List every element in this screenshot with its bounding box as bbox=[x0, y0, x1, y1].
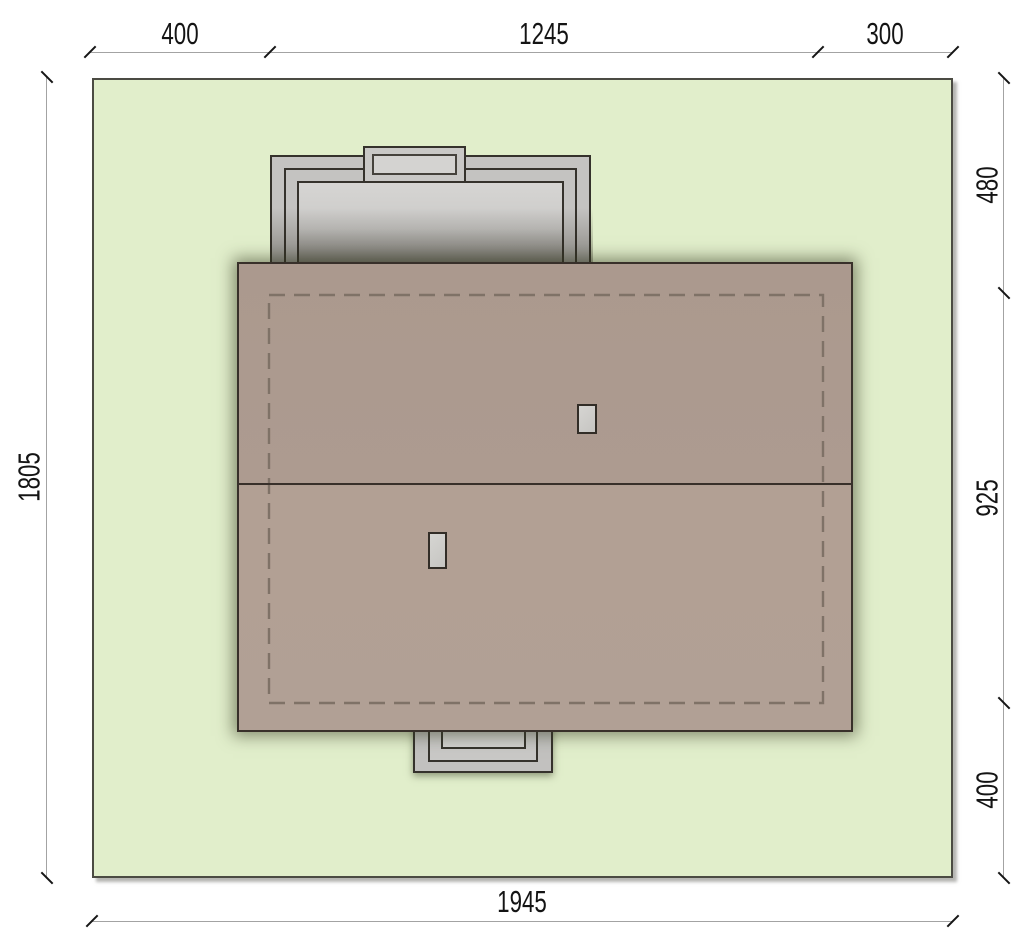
dimension-tick bbox=[264, 46, 277, 59]
dimension-tick bbox=[84, 46, 97, 59]
dimension-line-top: 400 1245 300 bbox=[90, 52, 953, 53]
dimension-tick bbox=[41, 71, 54, 84]
terrace-top-box-inner bbox=[372, 154, 457, 175]
dimension-label-right-2: 925 bbox=[972, 479, 1003, 516]
terrace-top-box bbox=[363, 146, 466, 183]
dimension-tick bbox=[947, 915, 960, 928]
dimension-label-right-3: 400 bbox=[972, 771, 1003, 808]
terrace-structure bbox=[270, 146, 593, 266]
site-plan-canvas: 400 1245 300 1945 1805 480 925 400 bbox=[0, 0, 1024, 932]
dimension-label-bottom: 1945 bbox=[497, 886, 547, 917]
roof bbox=[237, 262, 853, 732]
dimension-label-left: 1805 bbox=[14, 452, 45, 502]
dimension-label-top-3: 300 bbox=[866, 18, 903, 49]
dimension-label-top-1: 400 bbox=[161, 18, 198, 49]
dimension-label-top-2: 1245 bbox=[519, 18, 569, 49]
dimension-tick bbox=[998, 287, 1011, 300]
dimension-tick bbox=[998, 872, 1011, 885]
dimension-label-right-1: 480 bbox=[972, 166, 1003, 203]
dimension-tick bbox=[86, 915, 99, 928]
dimension-line-right: 480 925 400 bbox=[1003, 78, 1004, 878]
building-outline-dashed bbox=[267, 293, 825, 705]
dimension-tick bbox=[812, 46, 825, 59]
chimney-2 bbox=[428, 532, 447, 569]
dimension-tick bbox=[947, 46, 960, 59]
terrace-roof-shadow bbox=[270, 208, 593, 266]
chimney-1 bbox=[577, 404, 597, 434]
dimension-tick bbox=[998, 697, 1011, 710]
dimension-tick bbox=[41, 872, 54, 885]
dimension-line-bottom: 1945 bbox=[92, 921, 953, 922]
dimension-line-left: 1805 bbox=[46, 77, 47, 878]
roof-ridge-line bbox=[239, 483, 851, 485]
dimension-tick bbox=[998, 72, 1011, 85]
